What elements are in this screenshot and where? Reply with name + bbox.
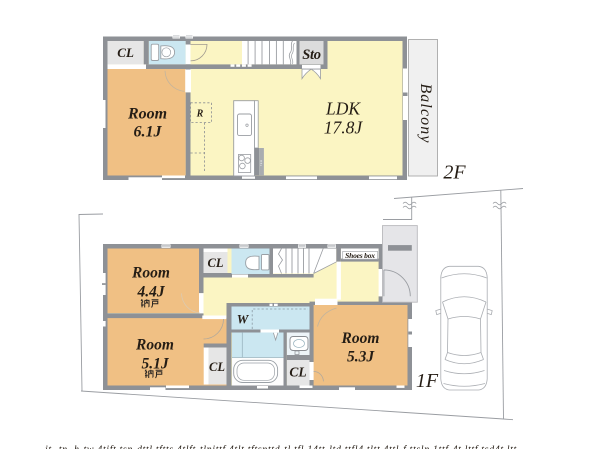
svg-text:Balcony: Balcony xyxy=(417,83,434,143)
svg-text:4.4J: 4.4J xyxy=(136,284,165,301)
svg-text:Room: Room xyxy=(127,106,167,123)
svg-text:W: W xyxy=(237,312,250,327)
svg-text:Sto: Sto xyxy=(302,47,320,63)
svg-text:Room: Room xyxy=(135,337,174,354)
svg-text:CL: CL xyxy=(289,365,306,380)
svg-text:5.3J: 5.3J xyxy=(347,349,375,366)
svg-text:CL: CL xyxy=(208,256,224,270)
svg-text:1F: 1F xyxy=(416,370,439,392)
svg-text:2F: 2F xyxy=(443,162,466,184)
svg-text:6.1J: 6.1J xyxy=(134,124,163,141)
svg-text:LDK: LDK xyxy=(325,99,361,119)
svg-text:Room: Room xyxy=(341,330,380,347)
svg-text:Room: Room xyxy=(131,265,170,282)
svg-text:R: R xyxy=(196,109,204,120)
svg-text:CL: CL xyxy=(209,360,225,374)
svg-text:it- tn. h-tw 4tift tsn-dttl tf: it- tn. h-tw 4tift tsn-dttl tftts 4tlft-… xyxy=(45,445,517,449)
svg-text:17.8J: 17.8J xyxy=(324,118,364,138)
svg-text:Shoes box: Shoes box xyxy=(345,251,375,260)
svg-text:CL: CL xyxy=(117,45,134,60)
